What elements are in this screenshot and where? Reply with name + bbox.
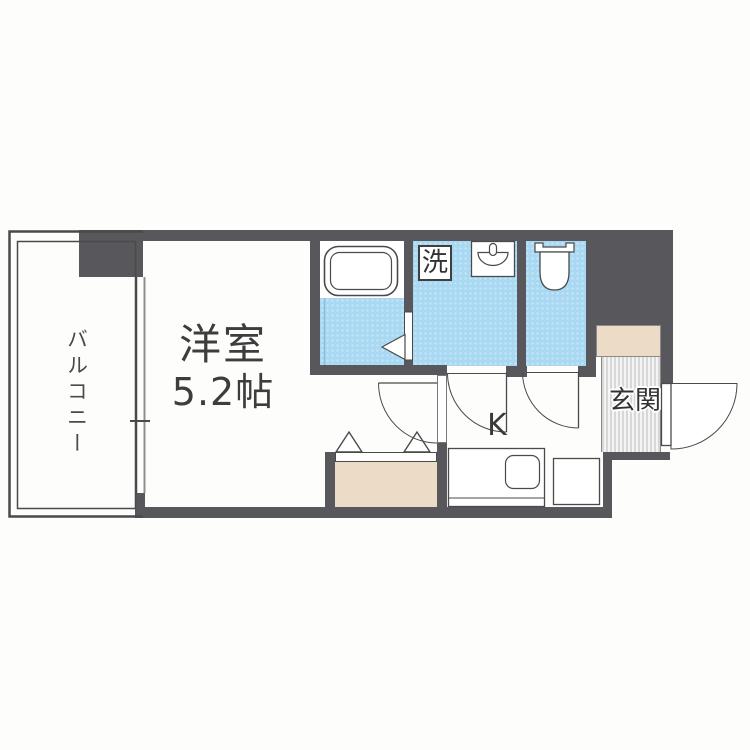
toilet-door-arc (523, 372, 579, 428)
refrigerator (554, 459, 600, 505)
sink-faucet (490, 244, 497, 256)
bathroom-door (405, 312, 413, 360)
toilet-icon (535, 243, 574, 252)
kitchen-label: K (477, 409, 517, 442)
room-name-label: 洋室 (103, 322, 343, 368)
floor-plan: バルコニー 洋室 5.2帖 洗 K 玄関 (0, 0, 750, 750)
kitchen-sink (506, 456, 540, 489)
entrance-label: 玄関 (599, 387, 671, 416)
closet-track (336, 453, 437, 462)
washer-label: 洗 (418, 245, 452, 281)
closet-door-triangle (336, 432, 362, 452)
room-size-label: 5.2帖 (103, 372, 343, 414)
entrance-door-arc (671, 384, 737, 450)
balcony-label: バルコニー (52, 320, 100, 465)
door-jamb (438, 376, 447, 443)
room-label: 洋室 5.2帖 (103, 322, 343, 414)
toilet-bowl (540, 252, 569, 290)
room-door-arc (379, 383, 438, 443)
bathroom-door-triangle (382, 335, 405, 360)
